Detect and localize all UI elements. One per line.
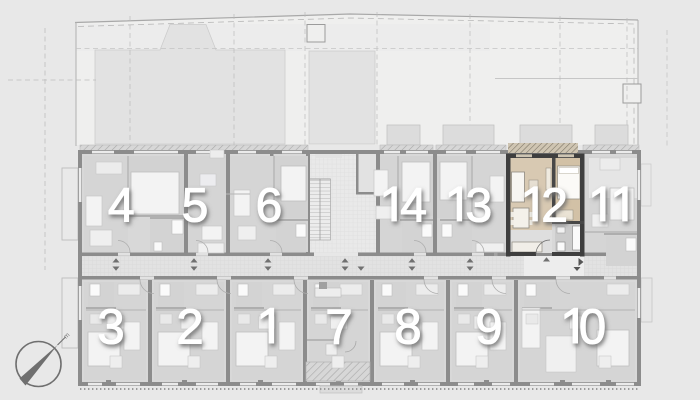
svg-text:4: 4	[400, 179, 427, 232]
svg-text:3: 3	[465, 179, 492, 232]
svg-text:4: 4	[108, 179, 135, 232]
svg-text:2: 2	[541, 179, 568, 232]
svg-text:0: 0	[579, 301, 606, 355]
svg-text:2: 2	[176, 301, 203, 355]
svg-text:3: 3	[97, 301, 124, 355]
svg-text:9: 9	[475, 301, 502, 355]
svg-text:5: 5	[182, 179, 209, 232]
svg-text:8: 8	[394, 301, 421, 355]
svg-text:7: 7	[325, 301, 352, 355]
svg-text:6: 6	[256, 179, 283, 232]
